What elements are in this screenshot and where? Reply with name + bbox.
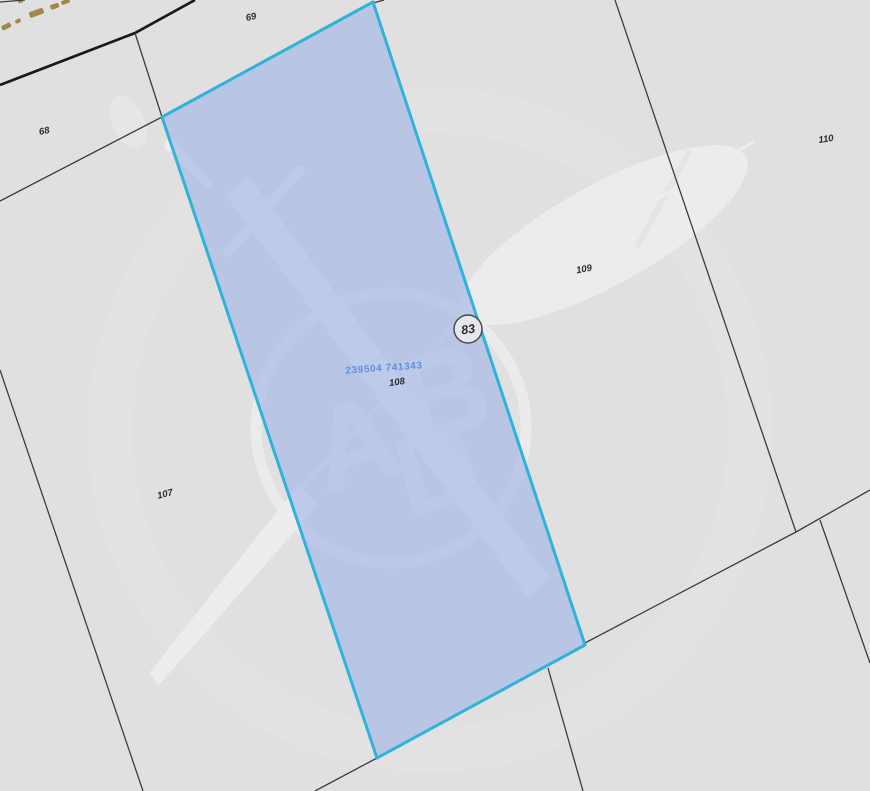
parcel-label-108: 108 bbox=[388, 376, 406, 389]
cadastral-map: A B D bbox=[0, 0, 870, 791]
parcel-marker-label: 83 bbox=[460, 321, 476, 337]
map-viewport[interactable]: A B D bbox=[0, 0, 870, 791]
parcel-marker-83[interactable]: 83 bbox=[454, 315, 482, 343]
parcel-label-110: 110 bbox=[818, 133, 835, 146]
